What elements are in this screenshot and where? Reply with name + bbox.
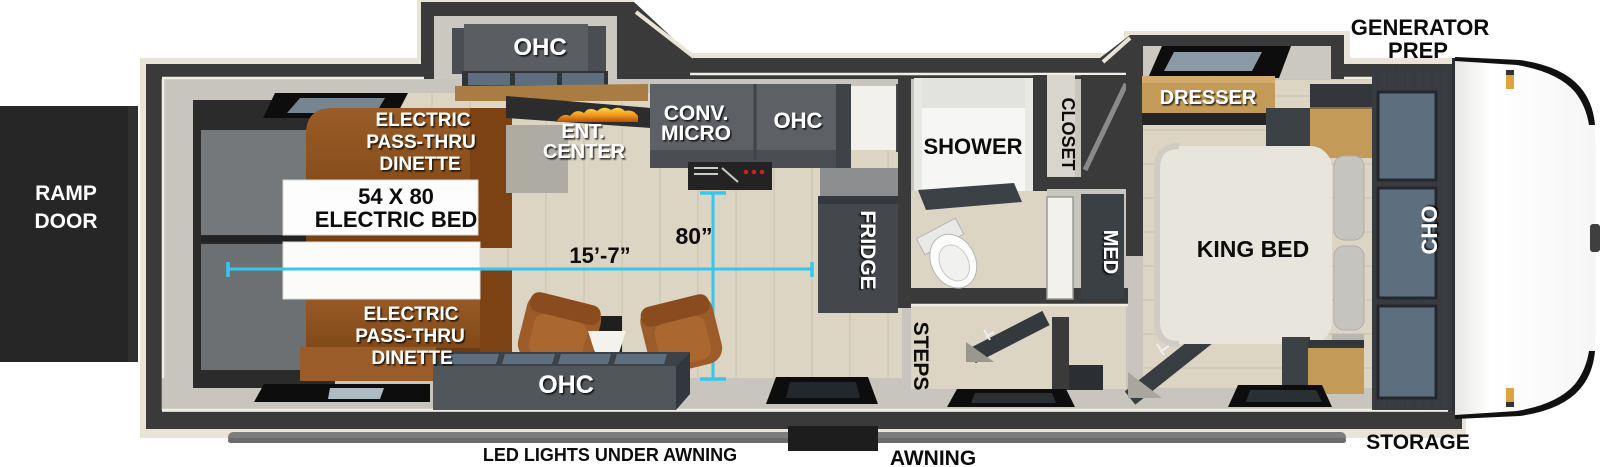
svg-text:ENT.: ENT. <box>561 121 604 143</box>
svg-text:80”: 80” <box>675 223 712 249</box>
svg-text:OHC: OHC <box>513 34 566 61</box>
svg-text:GENERATOR: GENERATOR <box>1351 15 1490 40</box>
svg-text:PASS-THRU: PASS-THRU <box>355 326 464 347</box>
svg-text:FRIDGE: FRIDGE <box>856 210 879 289</box>
svg-text:STEPS: STEPS <box>909 322 932 391</box>
svg-text:KING BED: KING BED <box>1197 236 1309 262</box>
svg-text:LED LIGHTS UNDER AWNING: LED LIGHTS UNDER AWNING <box>483 445 737 465</box>
svg-text:MICRO: MICRO <box>661 122 731 145</box>
svg-text:STORAGE: STORAGE <box>1366 431 1469 454</box>
svg-text:ELECTRIC BED: ELECTRIC BED <box>315 207 478 232</box>
svg-text:PASS-THRU: PASS-THRU <box>366 132 475 153</box>
svg-text:PREP: PREP <box>1388 38 1448 63</box>
svg-text:MED: MED <box>1099 230 1121 274</box>
svg-text:CHO: CHO <box>1417 206 1442 255</box>
svg-text:DINETTE: DINETTE <box>379 154 460 175</box>
svg-text:OHC: OHC <box>774 108 823 133</box>
svg-text:ELECTRIC: ELECTRIC <box>364 304 459 325</box>
svg-text:AWNING: AWNING <box>890 447 976 467</box>
svg-text:ELECTRIC: ELECTRIC <box>376 110 471 131</box>
svg-text:CENTER: CENTER <box>543 141 626 163</box>
svg-text:15’-7”: 15’-7” <box>569 243 630 268</box>
svg-text:DRESSER: DRESSER <box>1160 87 1257 109</box>
svg-text:SHOWER: SHOWER <box>924 134 1023 159</box>
svg-text:RAMP: RAMP <box>35 182 97 205</box>
svg-text:OHC: OHC <box>538 371 594 399</box>
svg-text:DOOR: DOOR <box>35 210 98 233</box>
svg-text:CLOSET: CLOSET <box>1058 97 1078 170</box>
svg-text:54 X 80: 54 X 80 <box>358 184 434 209</box>
svg-text:DINETTE: DINETTE <box>371 348 452 369</box>
